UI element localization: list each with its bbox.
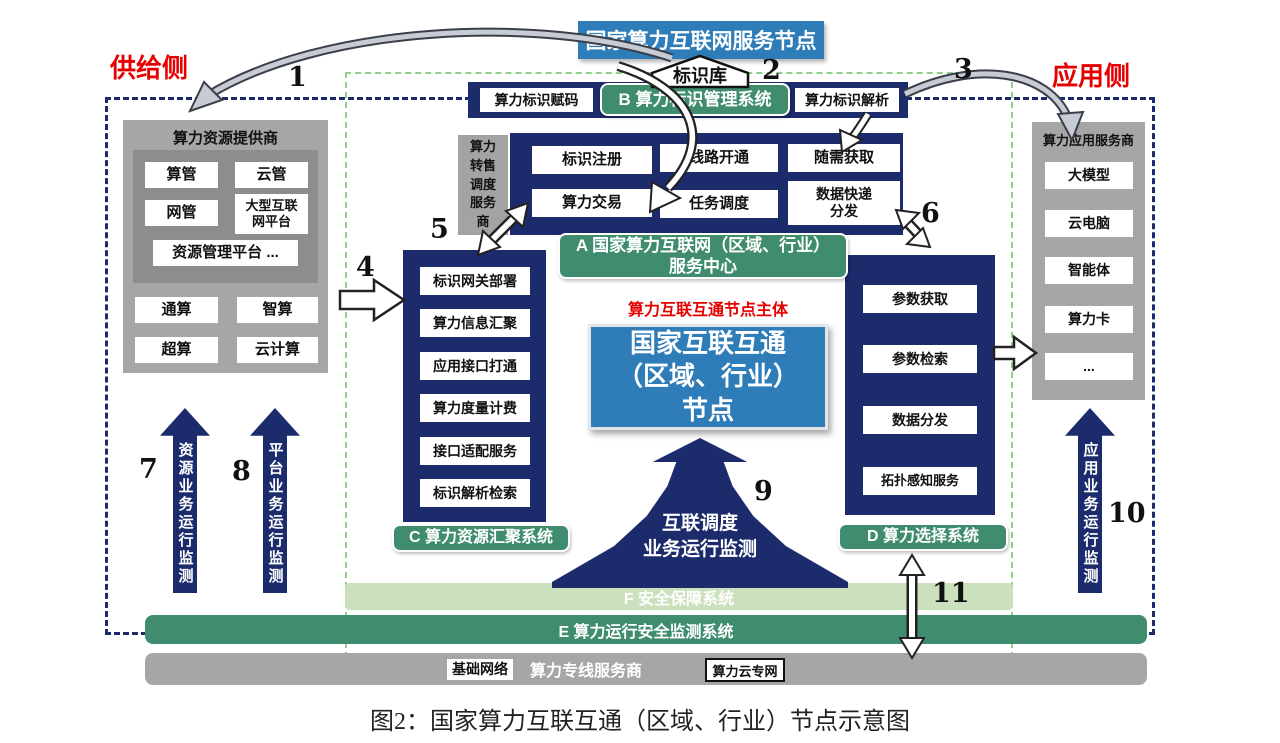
step-number-4: 4 — [356, 252, 375, 283]
c-item: 算力度量计费 — [420, 394, 530, 422]
step-number-9: 9 — [754, 476, 773, 507]
c-system-label: C 算力资源汇聚系统 — [392, 524, 570, 552]
national-computing-internet-service-node: 国家算力互联网服务节点 — [578, 21, 824, 59]
compute-resource-provider-title: 算力资源提供商 — [123, 127, 328, 147]
c-item: 应用接口打通 — [420, 352, 530, 380]
provider-item: 算管 — [145, 162, 218, 188]
app-item: 大模型 — [1045, 162, 1133, 189]
app-item: 云电脑 — [1045, 210, 1133, 237]
supply-side-label: 供给侧 — [110, 48, 188, 85]
a-item: 算力交易 — [532, 189, 652, 217]
step-number-8: 8 — [232, 456, 251, 487]
step-number-5: 5 — [430, 214, 449, 245]
step-number-2: 2 — [762, 55, 781, 86]
d-item: 拓扑感知服务 — [863, 467, 977, 495]
a-item: 数据快递 分发 — [788, 181, 900, 225]
step-number-6: 6 — [921, 198, 940, 229]
a-item: 随需获取 — [788, 144, 900, 172]
step-number-7: 7 — [139, 454, 158, 485]
national-interconnect-node-box: 国家互联互通 （区域、行业） 节点 — [588, 324, 828, 430]
d-item: 数据分发 — [863, 406, 977, 434]
application-monitor-text: 应用业务运行监测 — [1080, 442, 1101, 586]
a-item: 线路开通 — [660, 144, 778, 172]
interconnect-monitor-text: 互联调度 业务运行监测 — [552, 493, 848, 581]
provider-item: 网管 — [145, 200, 218, 226]
application-side-label: 应用侧 — [1052, 56, 1130, 93]
compute-id-encoding-box: 算力标识赋码 — [480, 88, 593, 112]
platform-monitor-text: 平台业务运行监测 — [265, 442, 286, 586]
step-number-1: 1 — [288, 62, 307, 93]
core-node-subject-label: 算力互联互通节点主体 — [593, 298, 823, 318]
compute-id-resolution-box: 算力标识解析 — [795, 88, 899, 112]
compute-cloud-network-box: 算力云专网 — [705, 658, 785, 682]
compute-type-item: 超算 — [135, 337, 218, 363]
compute-resale-scheduling-provider-box: 算力转售调度服务商 — [458, 135, 508, 235]
a-item: 任务调度 — [660, 190, 778, 218]
figure-caption: 图2：国家算力互联互通（区域、行业）节点示意图 — [0, 700, 1280, 736]
d-item: 参数获取 — [863, 285, 977, 313]
c-item: 标识解析检索 — [420, 479, 530, 507]
c-item: 标识网关部署 — [420, 267, 530, 295]
app-item: 算力卡 — [1045, 306, 1133, 333]
step-number-10: 10 — [1108, 498, 1146, 529]
step-number-11: 11 — [932, 578, 970, 609]
compute-application-provider-title: 算力应用服务商 — [1032, 130, 1145, 148]
compute-type-item: 云计算 — [237, 337, 318, 363]
dedicated-line-provider-label: 算力专线服务商 — [520, 657, 652, 681]
app-item: 智能体 — [1045, 257, 1133, 284]
d-item: 参数检索 — [863, 345, 977, 373]
step-number-3: 3 — [954, 54, 973, 85]
identifier-library-label: 标识库 — [652, 64, 748, 86]
a-service-center-label: A 国家算力互联网（区域、行业） 服务中心 — [558, 233, 848, 279]
app-item: ... — [1045, 353, 1133, 380]
provider-item: 大型互联 网平台 — [235, 194, 308, 234]
base-network-box: 基础网络 — [447, 659, 513, 680]
c-item: 算力信息汇聚 — [420, 309, 530, 337]
c-item: 接口适配服务 — [420, 437, 530, 465]
compute-type-item: 通算 — [135, 297, 218, 323]
resource-monitor-text: 资源业务运行监测 — [175, 442, 196, 586]
compute-type-item: 智算 — [237, 297, 318, 323]
a-item: 标识注册 — [532, 146, 652, 174]
provider-item: 资源管理平台 ... — [153, 240, 298, 266]
diagram-canvas: 供给侧 应用侧 国家算力互联网服务节点 标识库 算力标识赋码 B 算力标识管理系… — [0, 0, 1280, 743]
e-security-monitor-bar: E 算力运行安全监测系统 — [145, 615, 1147, 644]
provider-item: 云管 — [235, 162, 308, 188]
d-system-label: D 算力选择系统 — [838, 523, 1008, 551]
